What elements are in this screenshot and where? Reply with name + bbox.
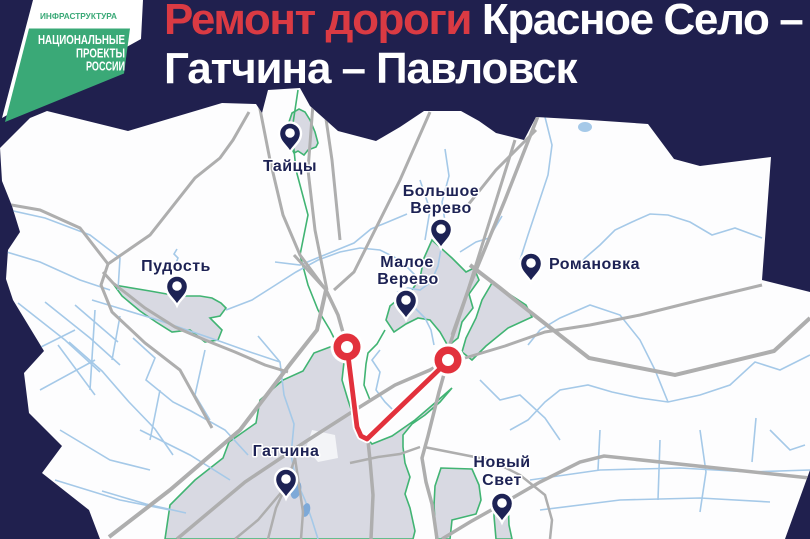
svg-text:ПРОЕКТЫ: ПРОЕКТЫ	[76, 47, 125, 61]
svg-text:Большое: Большое	[403, 183, 479, 200]
svg-text:Новый: Новый	[473, 454, 530, 471]
svg-text:Тайцы: Тайцы	[263, 158, 317, 175]
svg-text:Свет: Свет	[482, 472, 522, 489]
svg-text:Верево: Верево	[410, 200, 472, 217]
svg-text:НАЦИОНАЛЬНЫЕ: НАЦИОНАЛЬНЫЕ	[38, 33, 125, 47]
svg-text:Пудость: Пудость	[141, 258, 211, 275]
svg-text:Гатчина: Гатчина	[253, 443, 320, 460]
svg-text:Ремонт дороги Красное Село –: Ремонт дороги Красное Село –	[164, 0, 803, 44]
svg-text:ИНФРАСТРУКТУРА: ИНФРАСТРУКТУРА	[40, 11, 117, 21]
svg-text:Верево: Верево	[377, 271, 439, 288]
svg-text:Гатчина – Павловск: Гатчина – Павловск	[164, 44, 578, 93]
svg-text:РОССИИ: РОССИИ	[86, 60, 125, 74]
svg-text:Романовка: Романовка	[549, 256, 640, 273]
svg-text:Малое: Малое	[380, 254, 434, 271]
